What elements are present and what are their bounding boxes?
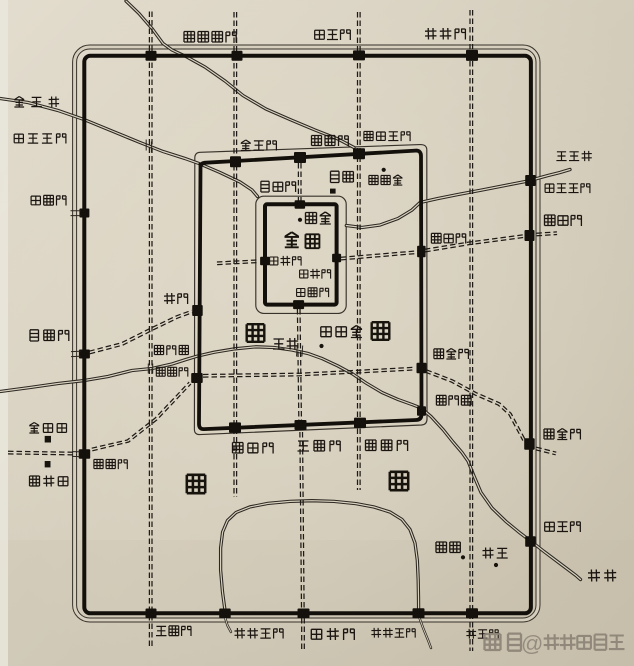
svg-text:@: @ (521, 631, 543, 656)
